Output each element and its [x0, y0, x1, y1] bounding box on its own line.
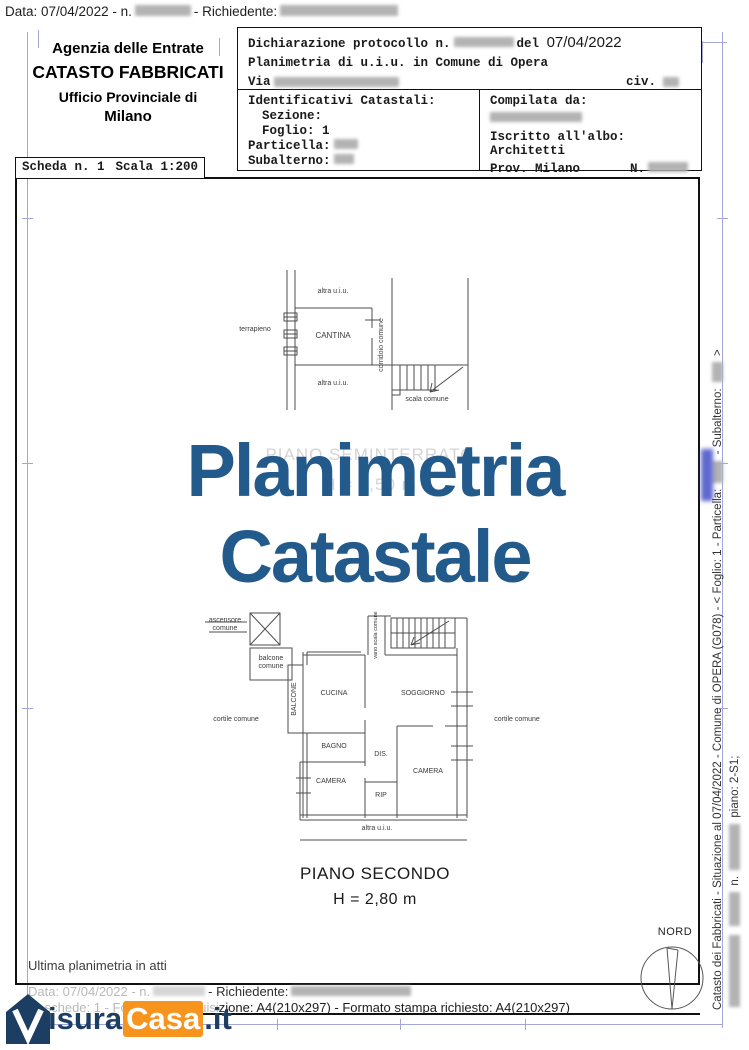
- agency-line1: Agenzia delle Entrate: [25, 40, 231, 57]
- foglio-line: Foglio: 1: [262, 124, 469, 138]
- compass: NORD: [632, 926, 718, 1018]
- redacted-side-particella: [713, 461, 724, 483]
- side-main-line: Catasto dei Fabbricati - Situazione al 0…: [710, 225, 727, 1010]
- bagno-label: BAGNO: [321, 743, 346, 751]
- prov-line: Prov. Milano N.: [490, 162, 691, 176]
- redacted-footer-richiedente: [291, 986, 411, 996]
- redacted-protocol: [454, 37, 514, 47]
- agency-header: Agenzia delle Entrate CATASTO FABBRICATI…: [25, 40, 231, 125]
- guide-tick: [400, 1019, 401, 1030]
- compass-icon: [632, 926, 718, 1018]
- civ-label: civ.: [626, 75, 656, 89]
- side-inner-line: n. piano: 2-S1;: [727, 225, 744, 1010]
- protocol-del: del: [517, 37, 540, 51]
- ultima-planimetria-line: Ultima planimetria in atti: [28, 958, 167, 973]
- via-label: Via: [248, 75, 271, 89]
- redacted-particella: [334, 139, 358, 149]
- protocol-cell: Dichiarazione protocollo n.del 07/04/202…: [238, 28, 701, 90]
- redacted-civ: [663, 77, 679, 87]
- height-label: H = 2,80 m: [230, 891, 520, 909]
- cantina-label: CANTINA: [315, 332, 350, 340]
- visuracasa-logo[interactable]: isuraCasa.it: [6, 993, 232, 1045]
- protocol-line: Dichiarazione protocollo n.del 07/04/202…: [248, 34, 691, 51]
- corridoio-comune-label: corridoio comune: [378, 318, 386, 372]
- redacted-blue-stamp: [701, 449, 713, 501]
- cucina-label: CUCINA: [321, 690, 348, 698]
- ascensore-comune-label: ascensore comune: [202, 617, 248, 633]
- top-meta-line: Data: 07/04/2022 - n.- Richiedente:: [5, 4, 401, 19]
- basement-plan: terrapieno altra u.i.u. CANTINA corridoi…: [225, 268, 475, 413]
- scala-label: Scala 1:200: [115, 160, 198, 174]
- guide-tick: [525, 1019, 526, 1030]
- cadastral-document-page: Data: 07/04/2022 - n.- Richiedente: Agen…: [0, 0, 749, 1050]
- altra-uiu-top-label: altra u.i.u.: [318, 288, 349, 296]
- basement-plan-drawing: [225, 268, 475, 413]
- guide-tick: [717, 218, 728, 219]
- agency-line2: CATASTO FABBRICATI: [25, 62, 231, 83]
- second-floor-plan-drawing: [195, 608, 545, 843]
- prov-label: Prov. Milano: [490, 162, 580, 176]
- redacted-street: [274, 77, 399, 87]
- redacted-side-subalterno: [713, 362, 724, 382]
- altra-uiu-label: altra u.i.u.: [362, 825, 393, 833]
- n-label: N.: [630, 162, 645, 176]
- identifiers-cell: Identificativi Catastali: Sezione: Fogli…: [238, 90, 480, 170]
- redacted-compiler-name: [490, 112, 582, 122]
- top-richiedente-label: - Richiedente:: [194, 4, 277, 19]
- compiler-title: Compilata da:: [490, 94, 691, 108]
- agency-line4: Milano: [25, 108, 231, 125]
- floor-caption: PIANO SECONDO H = 2,80 m: [230, 864, 520, 909]
- guide-tick: [277, 1019, 278, 1030]
- watermark-line1: Planimetria: [60, 428, 690, 514]
- visuracasa-house-icon: [6, 994, 50, 1044]
- camera-left-label: CAMERA: [316, 778, 346, 786]
- top-date-label: Data: 07/04/2022 - n.: [5, 4, 132, 19]
- rip-label: RIP: [375, 792, 387, 800]
- scala-comune-label: scala comune: [405, 396, 448, 404]
- camera-right-label: CAMERA: [413, 768, 443, 776]
- balcone-comune-label: balcone comune: [252, 655, 290, 671]
- logo-isura: isura: [48, 1001, 122, 1037]
- subalterno-line: Subalterno:: [248, 154, 469, 168]
- agency-line3: Ufficio Provinciale di: [25, 89, 231, 105]
- vano-scala-label: vano scala comune: [372, 611, 380, 658]
- side-vertical-text: Catasto dei Fabbricati - Situazione al 0…: [710, 225, 746, 1010]
- redacted-albo-number: [648, 162, 688, 172]
- redacted-side-1: [730, 935, 741, 1007]
- sheet-info-box: Scheda n. 1 Scala 1:200: [15, 157, 205, 179]
- dis-label: DIS.: [374, 751, 388, 759]
- protocol-label: Dichiarazione protocollo n.: [248, 37, 451, 51]
- redacted-side-3: [730, 824, 741, 870]
- cortile-comune-left-label: cortile comune: [213, 716, 259, 724]
- cortile-comune-right-label: cortile comune: [494, 716, 540, 724]
- logo-casa: Casa: [123, 1001, 203, 1037]
- redacted-richiedente: [280, 5, 398, 16]
- guide-tick: [702, 41, 703, 63]
- albo-line2: Architetti: [490, 144, 691, 158]
- watermark-line2: Catastale: [60, 514, 690, 600]
- albo-line1: Iscritto all'albo:: [490, 130, 691, 144]
- piano-secondo-label: PIANO SECONDO: [230, 864, 520, 884]
- compiler-cell: Compilata da: Iscritto all'albo: Archite…: [480, 90, 701, 170]
- redacted-side-2: [730, 892, 741, 926]
- sheet-info-line: Scheda n. 1 Scala 1:200: [16, 158, 204, 176]
- redacted-protocol-number: [135, 5, 191, 16]
- declaration-box: Dichiarazione protocollo n.del 07/04/202…: [237, 27, 702, 171]
- second-floor-plan: ascensore comune balcone comune BALCONE …: [195, 608, 545, 843]
- subject-line: Planimetria di u.i.u. in Comune di Opera: [248, 56, 691, 70]
- soggiorno-label: SOGGIORNO: [401, 690, 445, 698]
- scheda-label: Scheda n. 1: [22, 160, 105, 174]
- particella-line: Particella:: [248, 139, 469, 153]
- balcone-label: BALCONE: [291, 682, 299, 715]
- identifiers-title: Identificativi Catastali:: [248, 94, 469, 108]
- watermark: Planimetria Catastale: [60, 428, 690, 600]
- redacted-subalterno: [334, 154, 354, 164]
- terrapieno-label: terrapieno: [239, 326, 271, 334]
- address-line: Via civ.: [248, 75, 691, 89]
- logo-it: .it: [204, 1001, 232, 1037]
- altra-uiu-bottom-label: altra u.i.u.: [318, 380, 349, 388]
- protocol-date: 07/04/2022: [547, 34, 622, 51]
- sezione-line: Sezione:: [262, 109, 469, 123]
